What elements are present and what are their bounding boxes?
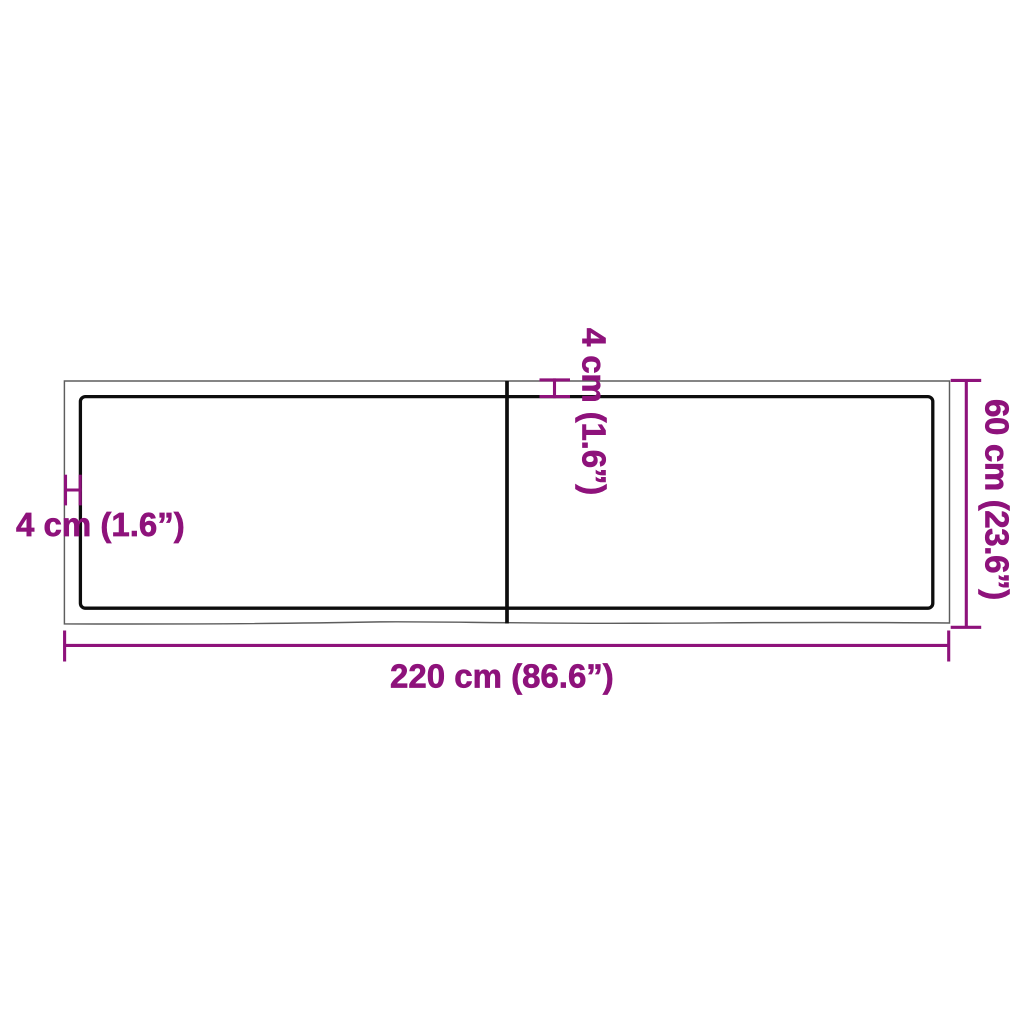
svg-text:4 cm (1.6”): 4 cm (1.6”) [575, 328, 612, 495]
svg-text:220 cm (86.6”): 220 cm (86.6”) [390, 658, 614, 695]
svg-text:4 cm (1.6”): 4 cm (1.6”) [16, 506, 185, 543]
svg-text:60 cm (23.6”): 60 cm (23.6”) [979, 399, 1016, 600]
